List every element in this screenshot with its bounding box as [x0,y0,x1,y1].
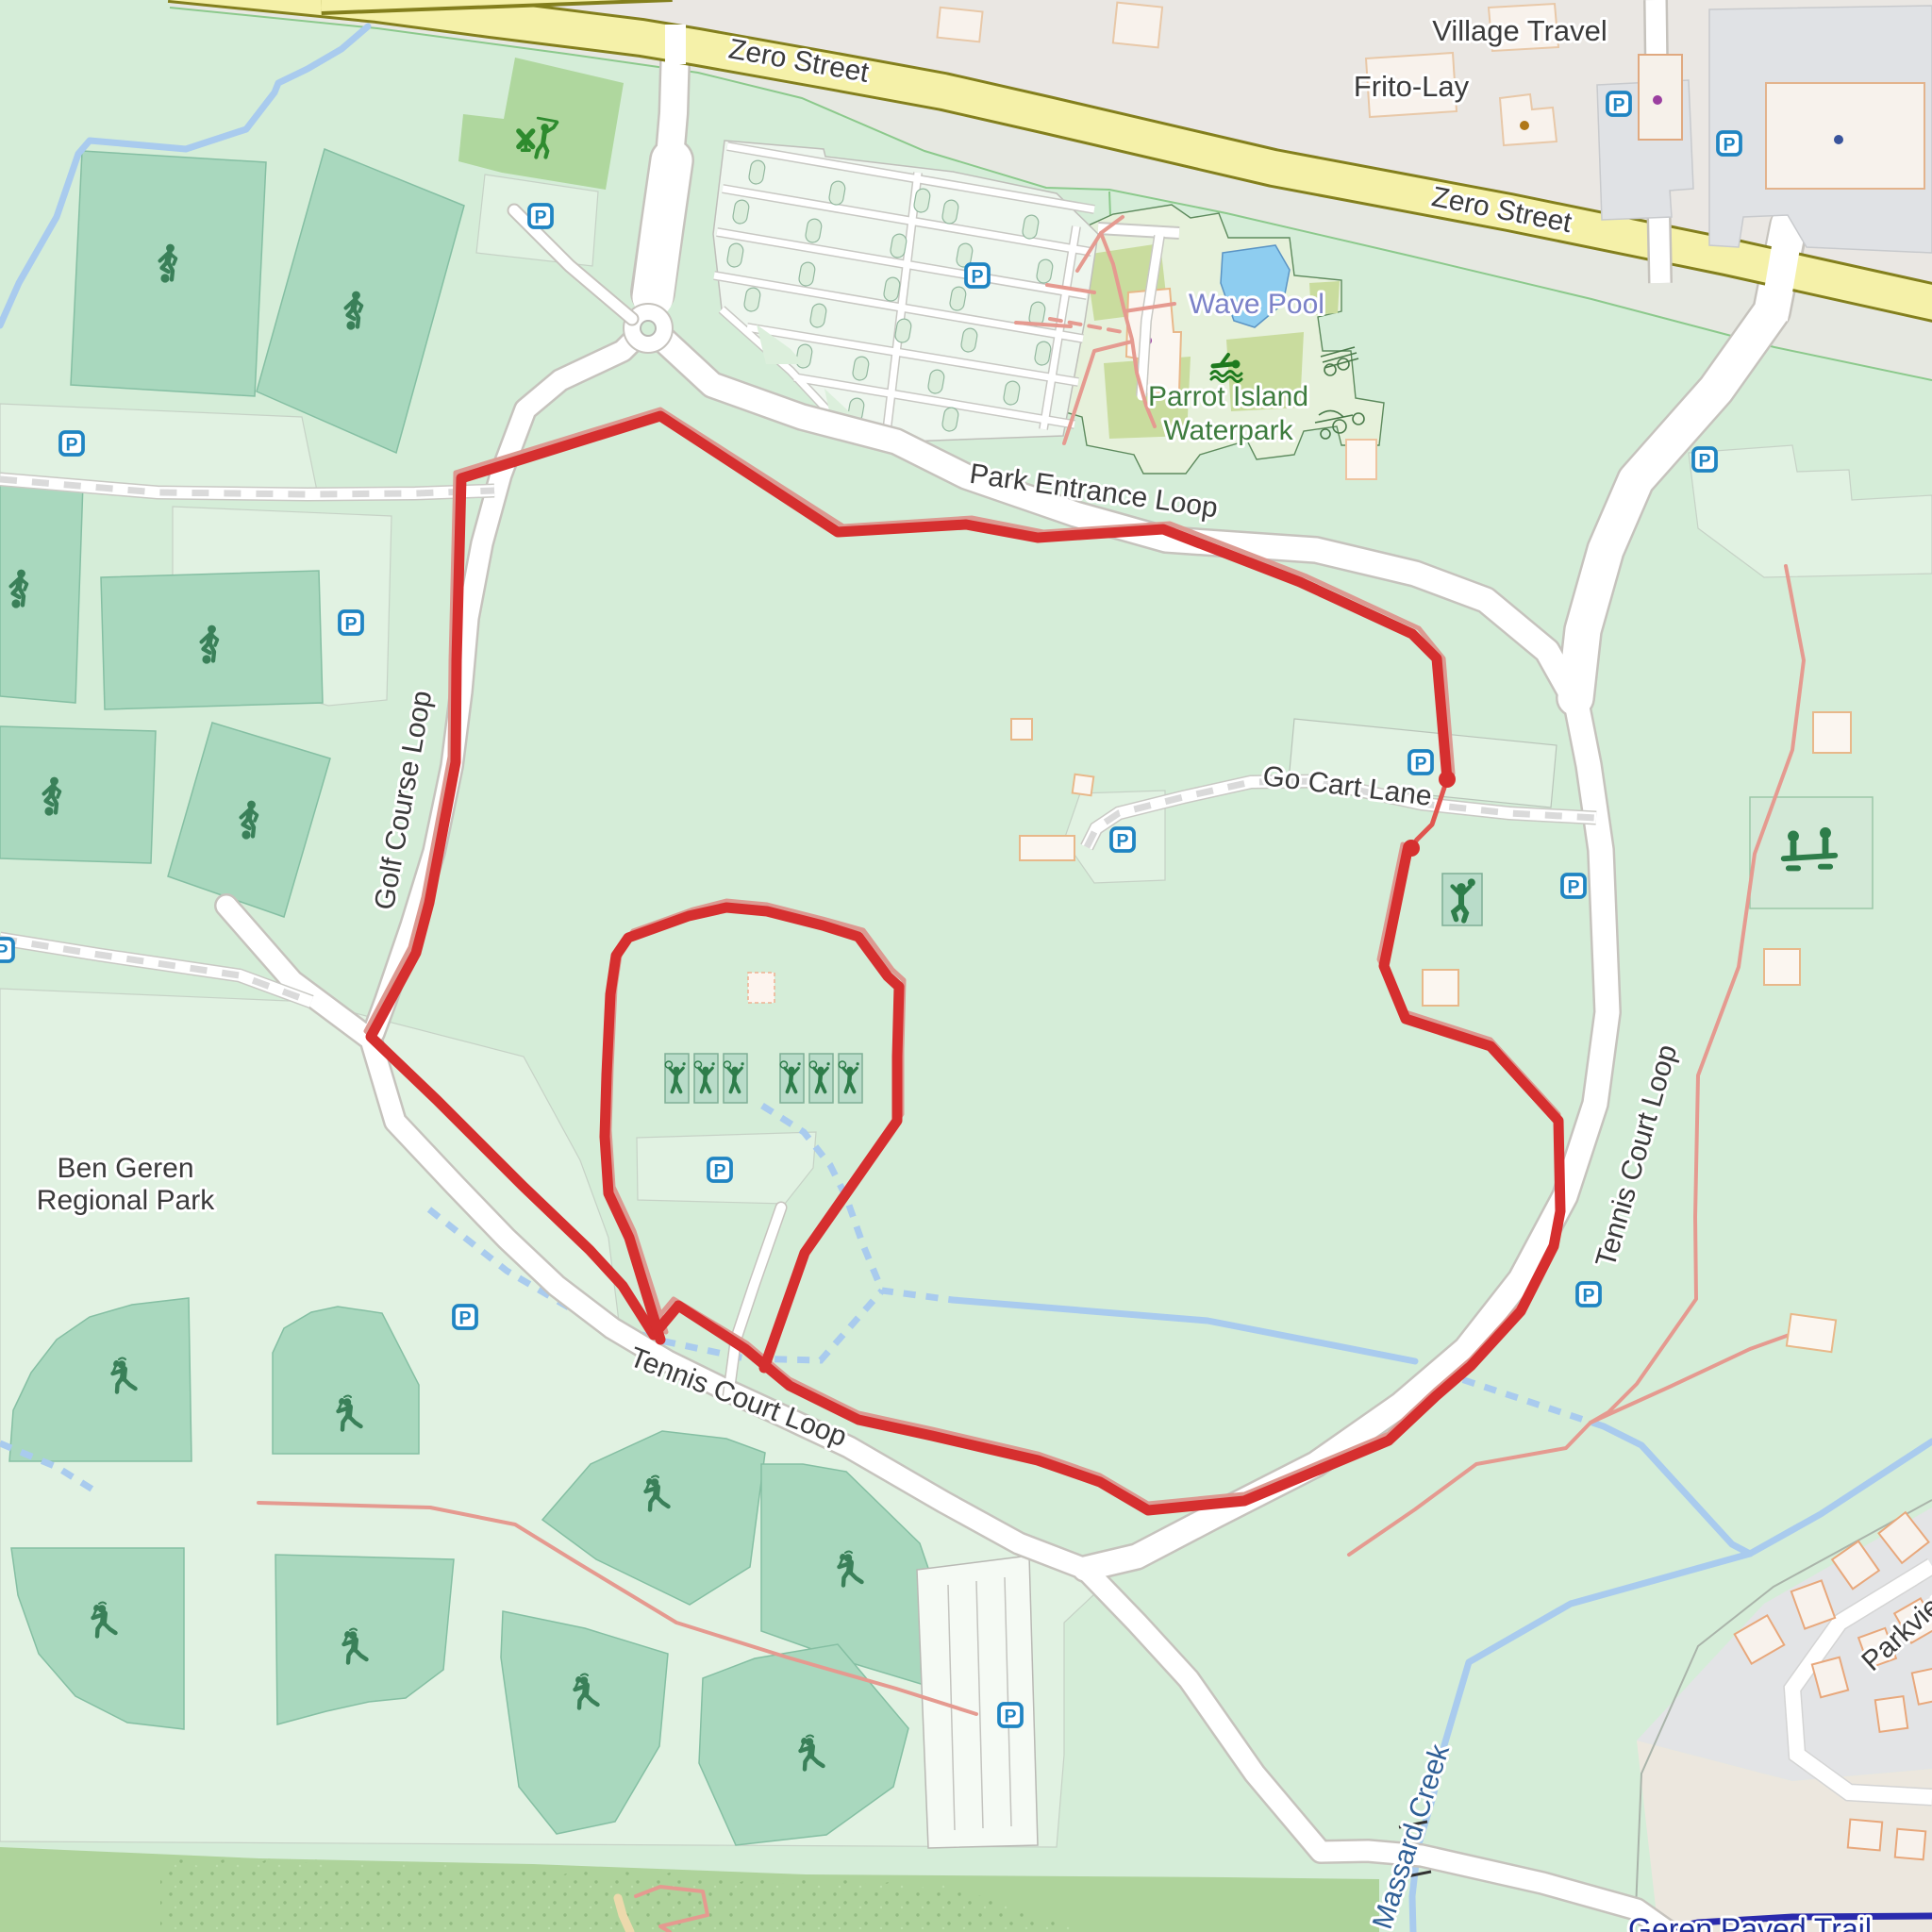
svg-text:Frito-Lay: Frito-Lay [1354,70,1470,103]
svg-text:Village Travel: Village Travel [1432,14,1607,47]
svg-text:Wave Pool: Wave Pool [1189,289,1324,320]
svg-text:Parrot Island: Parrot Island [1148,381,1308,412]
svg-text:Waterpark: Waterpark [1163,415,1293,446]
svg-text:Ben Geren: Ben Geren [57,1153,193,1184]
svg-text:Geren Paved Trail: Geren Paved Trail [1628,1912,1872,1932]
svg-text:Regional Park: Regional Park [37,1185,215,1216]
